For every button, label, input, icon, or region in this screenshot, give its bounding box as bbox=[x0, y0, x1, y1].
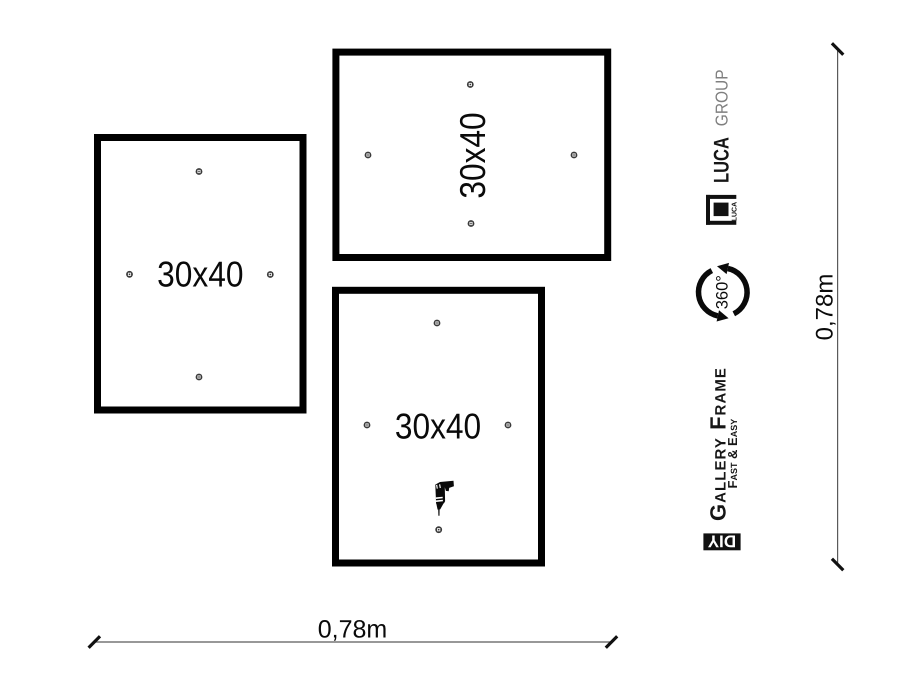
svg-text:360°: 360° bbox=[714, 275, 732, 309]
svg-text:GROUP: GROUP bbox=[711, 69, 731, 126]
svg-text:30x40: 30x40 bbox=[452, 112, 493, 198]
svg-text:LUCA: LUCA bbox=[732, 202, 739, 221]
svg-text:0,78m: 0,78m bbox=[811, 274, 838, 341]
svg-text:30x40: 30x40 bbox=[395, 405, 481, 446]
svg-text:0,78m: 0,78m bbox=[318, 616, 387, 644]
svg-text:Fast & Easy: Fast & Easy bbox=[725, 419, 740, 489]
svg-text:LUCA: LUCA bbox=[710, 137, 733, 183]
svg-text:30x40: 30x40 bbox=[157, 254, 243, 295]
svg-text:DIY: DIY bbox=[707, 532, 736, 551]
